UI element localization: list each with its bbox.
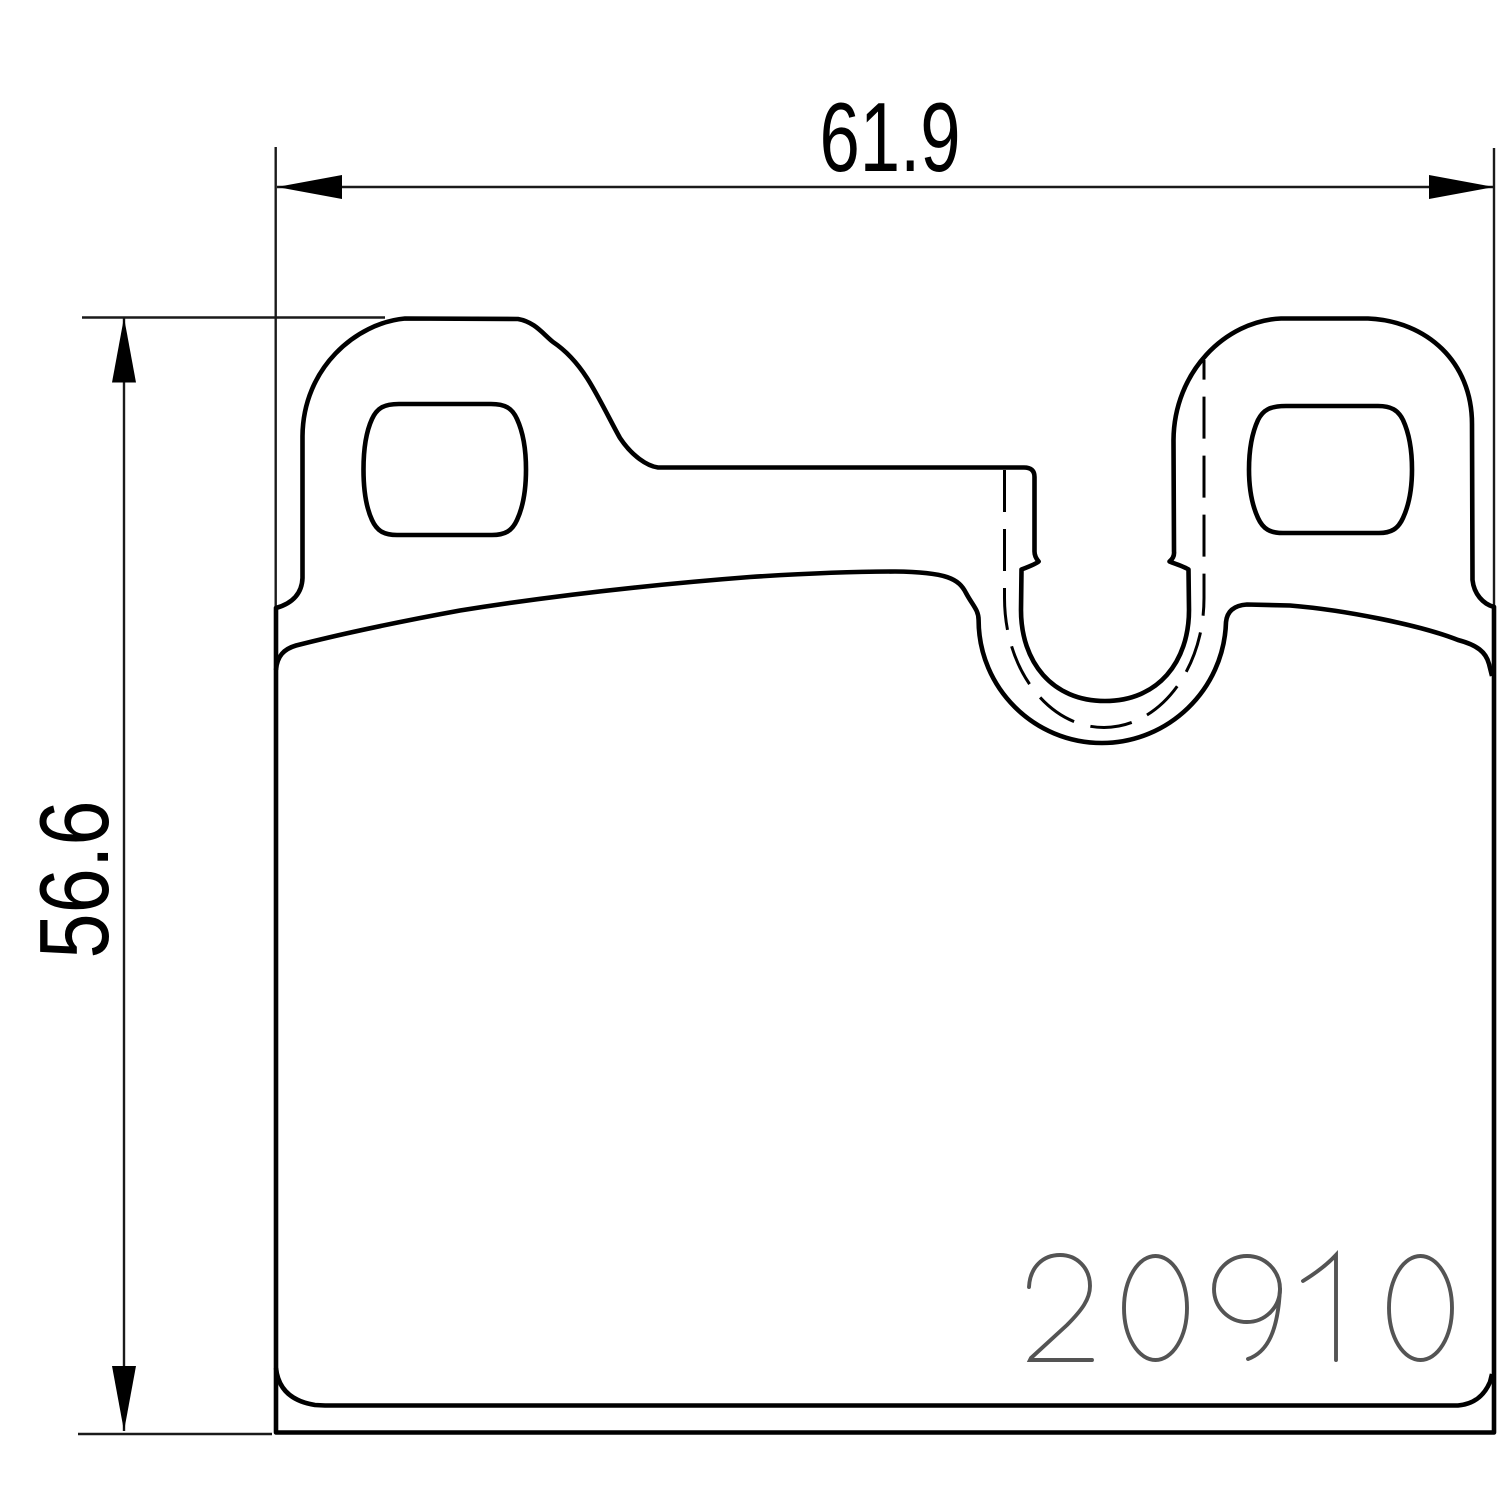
svg-text:61.9: 61.9 — [819, 83, 960, 192]
svg-text:56.6: 56.6 — [20, 800, 130, 958]
